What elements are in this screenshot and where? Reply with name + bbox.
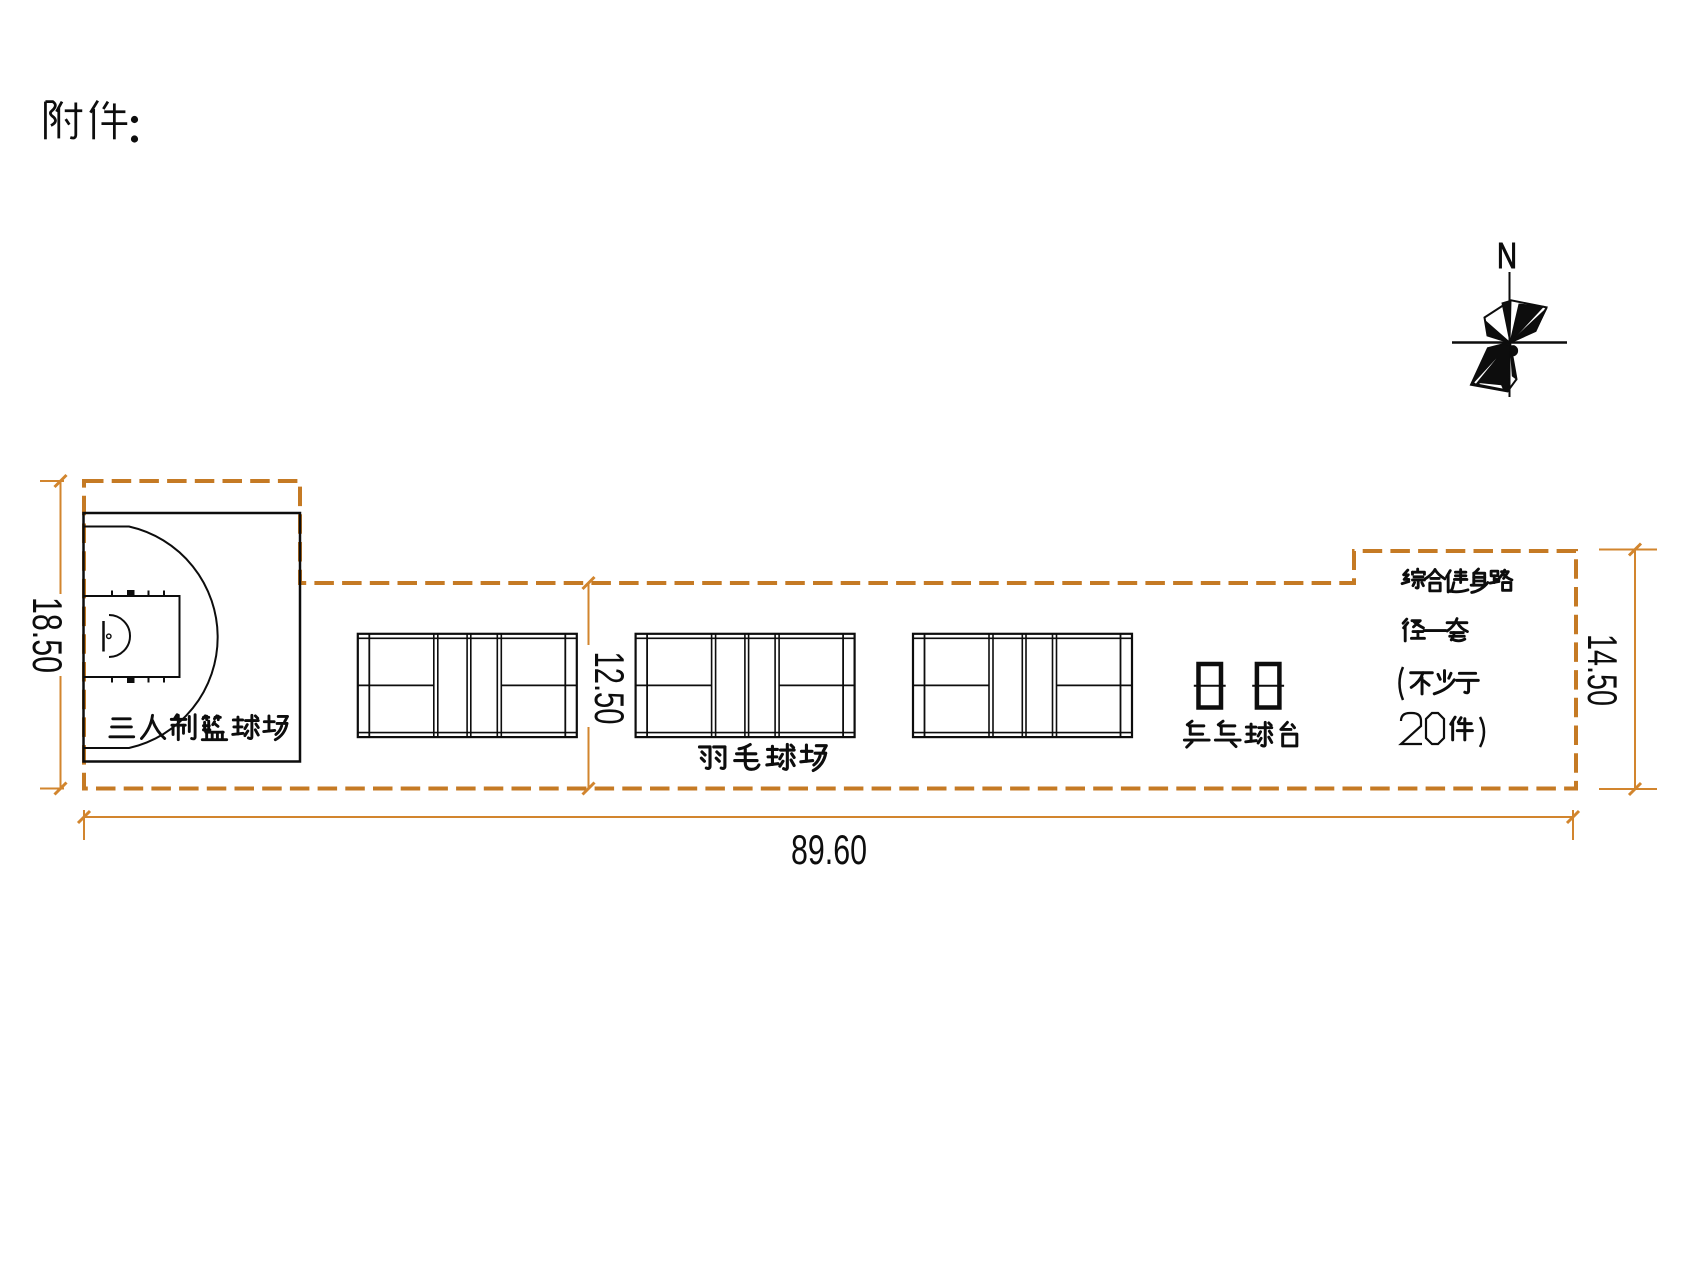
svg-text:14.50: 14.50 <box>1579 634 1626 706</box>
svg-text:N: N <box>1497 235 1517 276</box>
svg-text:18.50: 18.50 <box>24 597 71 673</box>
svg-text:89.60: 89.60 <box>791 826 867 873</box>
svg-text:12.50: 12.50 <box>586 652 633 725</box>
